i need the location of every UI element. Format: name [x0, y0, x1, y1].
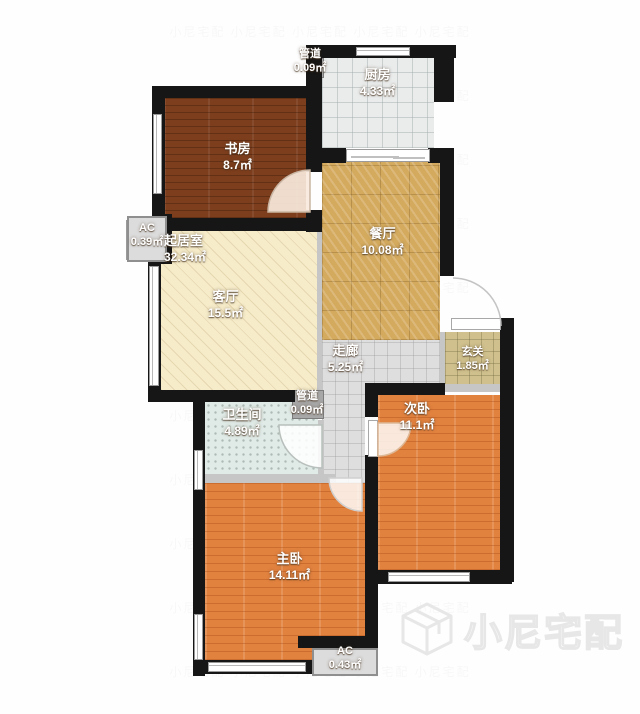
window-living-left: [149, 266, 159, 386]
partition-bath-right: [318, 420, 324, 476]
label-living: 客厅 15.5㎡: [178, 288, 273, 322]
room-name: 走廊: [303, 342, 388, 359]
room-name: 次卧: [372, 400, 462, 417]
room-name: 管道: [281, 389, 333, 403]
room-area: 10.08㎡: [340, 242, 425, 259]
label-duct-top: 管道 0.09㎡: [284, 47, 336, 75]
room-name: 厨房: [335, 66, 420, 83]
floor-plan: 小尼宅配 小尼宅配 小尼宅配 小尼宅配 小尼宅配 小尼宅配 小尼宅配 小尼宅配 …: [0, 0, 640, 714]
label-master-bedroom: 主卧 14.11㎡: [242, 550, 337, 584]
room-area: 32.34㎡: [164, 249, 249, 266]
label-corridor: 走廊 5.25㎡: [303, 342, 388, 376]
wall-living-bottom: [148, 390, 295, 402]
window-bed2-bottom: [388, 572, 470, 582]
room-name: 客厅: [178, 288, 273, 305]
room-area: 11.1㎡: [372, 417, 462, 434]
wall-study-bottom: [152, 218, 322, 231]
room-area: 0.43㎡: [310, 658, 380, 672]
label-entry: 玄关 1.85㎡: [430, 345, 515, 373]
room-area: 0.39㎡: [127, 235, 167, 249]
label-ac-left: AC 0.39㎡: [127, 221, 167, 249]
room-name: AC: [127, 221, 167, 235]
brand-watermark: 小尼宅配: [398, 600, 624, 658]
room-name: 餐厅: [340, 225, 425, 242]
wall-dining-right: [440, 148, 454, 276]
room-area: 0.09㎡: [284, 61, 336, 75]
wall-kitchen-bottom-l: [318, 148, 346, 163]
room-area: 14.11㎡: [242, 567, 337, 584]
brand-text: 小尼宅配: [464, 602, 624, 657]
window-study-left: [153, 114, 162, 194]
wall-bed2-top: [365, 383, 445, 395]
room-name: 起居室: [164, 232, 249, 249]
room-area: 4.33㎡: [335, 83, 420, 100]
room-name: 管道: [284, 47, 336, 61]
label-study: 书房 8.7㎡: [185, 140, 290, 174]
label-duct-middle: 管道 0.09㎡: [281, 389, 333, 417]
room-name: 主卧: [242, 550, 337, 567]
room-name: 玄关: [430, 345, 515, 359]
room-name: 书房: [185, 140, 290, 157]
wall-kitchen-right: [434, 45, 454, 102]
label-bathroom: 卫生间 4.89㎡: [196, 406, 288, 440]
entrance-door-leaf: [451, 318, 501, 330]
room-area: 4.89㎡: [196, 423, 288, 440]
label-living-total: 起居室 32.34㎡: [164, 232, 249, 266]
label-dining: 餐厅 10.08㎡: [340, 225, 425, 259]
window-master-left: [194, 614, 203, 660]
label-kitchen: 厨房 4.33㎡: [335, 66, 420, 100]
room-area: 1.85㎡: [430, 359, 515, 373]
wall-bed2-left-lower: [365, 455, 378, 650]
room-name: AC: [310, 644, 380, 658]
room-area: 5.25㎡: [303, 359, 388, 376]
kitchen-sliding-door: [346, 149, 430, 162]
brand-cube-icon: [398, 600, 456, 658]
partition-bath-master: [193, 474, 335, 483]
label-ac-bottom: AC 0.43㎡: [310, 644, 380, 672]
window-kitchen-top: [356, 47, 410, 56]
partition-entry-bottom: [443, 384, 501, 392]
window-bath-left: [194, 450, 203, 490]
room-area: 0.09㎡: [281, 403, 333, 417]
window-master-bottom: [208, 662, 306, 672]
room-area: 15.5㎡: [178, 305, 273, 322]
room-area: 8.7㎡: [185, 157, 290, 174]
room-name: 卫生间: [196, 406, 288, 423]
label-second-bedroom: 次卧 11.1㎡: [372, 400, 462, 434]
wall-study-top: [152, 86, 320, 98]
